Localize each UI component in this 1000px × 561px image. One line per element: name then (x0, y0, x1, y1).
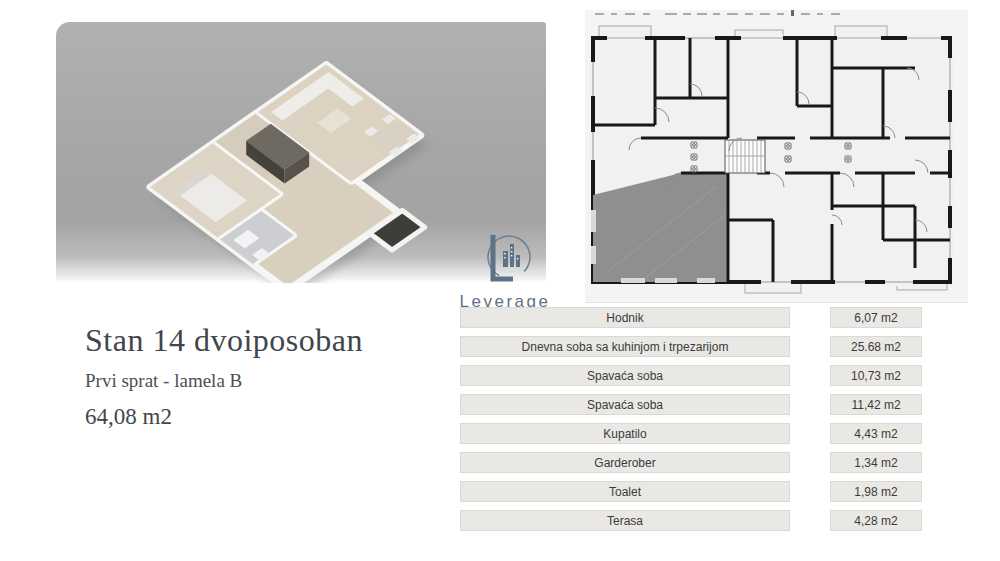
real-estate-flyer: Stan 14 dvoiposoban Prvi sprat - lamela … (0, 0, 1000, 561)
table-row: Garderober 1,34 m2 (460, 452, 922, 473)
table-row: Dnevna soba sa kuhinjom i trpezarijom 25… (460, 336, 922, 357)
listing-info: Stan 14 dvoiposoban Prvi sprat - lamela … (85, 322, 363, 430)
rooms-table: Hodnik 6,07 m2 Dnevna soba sa kuhinjom i… (460, 307, 922, 539)
floorplan-2d (585, 10, 968, 302)
room-name-cell: Spavaća soba (460, 365, 790, 386)
room-area-cell: 4,28 m2 (830, 510, 922, 531)
room-area-cell: 25.68 m2 (830, 336, 922, 357)
room-name-cell: Terasa (460, 510, 790, 531)
room-name-cell: Dnevna soba sa kuhinjom i trpezarijom (460, 336, 790, 357)
room-name-cell: Garderober (460, 452, 790, 473)
table-row: Hodnik 6,07 m2 (460, 307, 922, 328)
room-name-cell: Kupatilo (460, 423, 790, 444)
room-name-cell: Toalet (460, 481, 790, 502)
table-row: Kupatilo 4,43 m2 (460, 423, 922, 444)
table-row: Toalet 1,98 m2 (460, 481, 922, 502)
floorplan-2d-panel (585, 10, 968, 303)
room-area-cell: 10,73 m2 (830, 365, 922, 386)
table-row: Spavaća soba 11,42 m2 (460, 394, 922, 415)
room-area-cell: 6,07 m2 (830, 307, 922, 328)
listing-total-area: 64,08 m2 (85, 404, 363, 430)
leverage-logo-icon (472, 230, 538, 290)
room-name-cell: Hodnik (460, 307, 790, 328)
listing-floor: Prvi sprat - lamela B (85, 370, 363, 392)
room-area-cell: 4,43 m2 (830, 423, 922, 444)
room-area-cell: 1,98 m2 (830, 481, 922, 502)
table-row: Terasa 4,28 m2 (460, 510, 922, 531)
room-area-cell: 11,42 m2 (830, 394, 922, 415)
room-area-cell: 1,34 m2 (830, 452, 922, 473)
table-row: Spavaća soba 10,73 m2 (460, 365, 922, 386)
listing-title: Stan 14 dvoiposoban (85, 322, 363, 359)
room-name-cell: Spavaća soba (460, 394, 790, 415)
